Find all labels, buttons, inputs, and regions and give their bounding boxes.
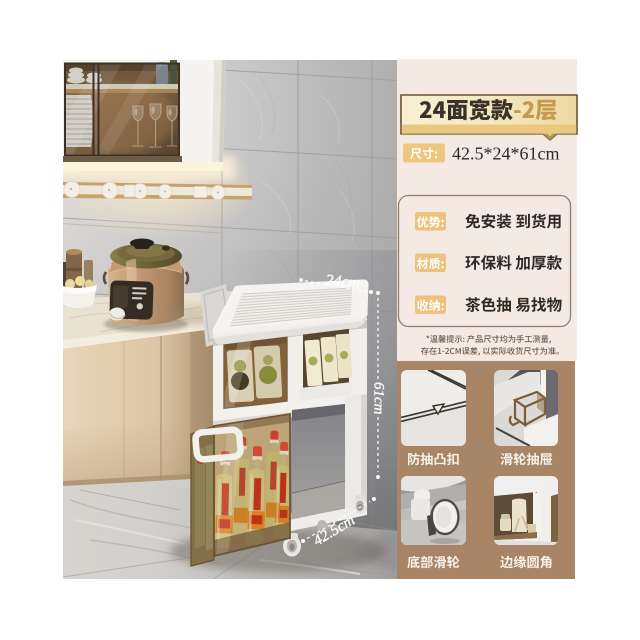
svg-text:24cm: 24cm <box>325 272 361 292</box>
svg-text:61cm: 61cm <box>371 382 387 415</box>
svg-text:42.5*24*61cm: 42.5*24*61cm <box>452 144 560 164</box>
